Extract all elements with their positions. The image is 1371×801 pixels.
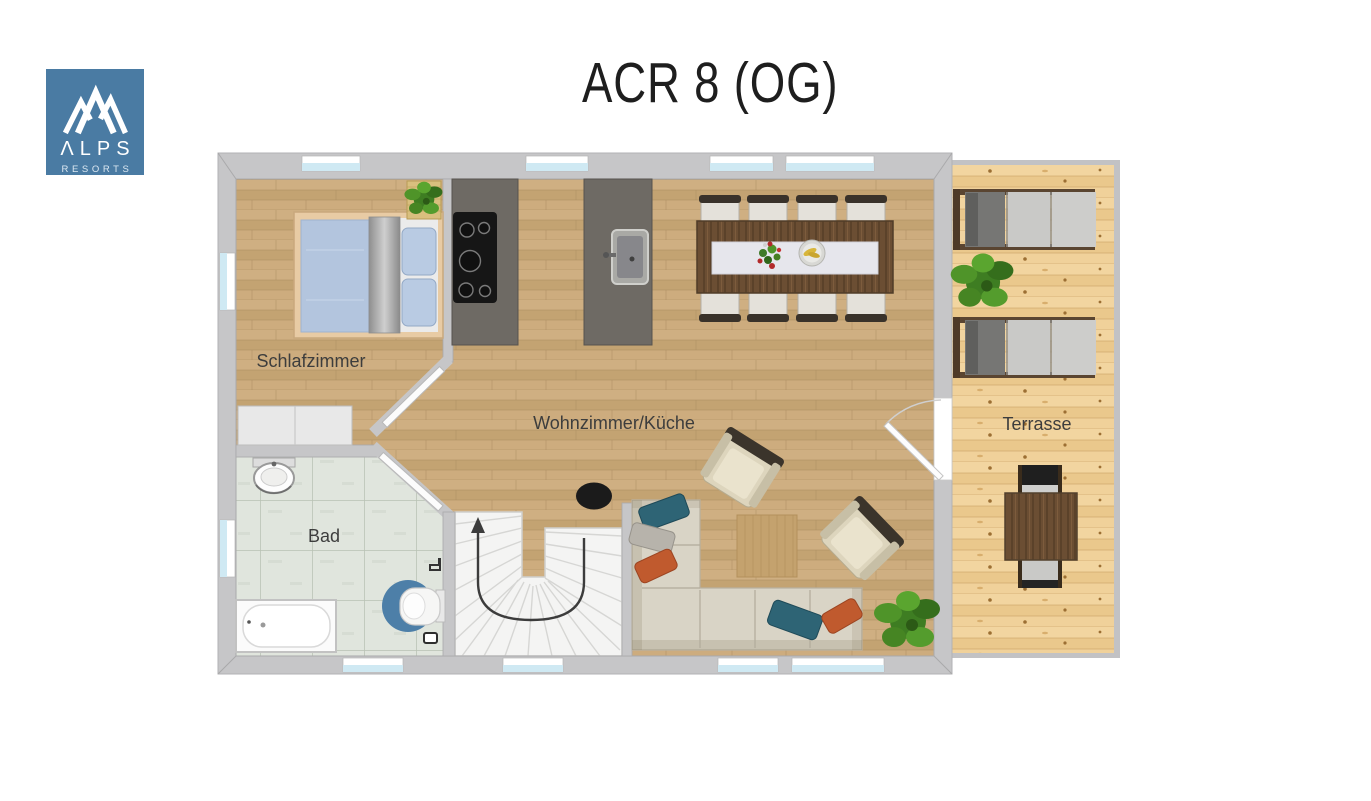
dining-chair bbox=[747, 291, 789, 322]
floor-plan: Schlafzimmer Bad Wohnzimmer/Küche Terras… bbox=[0, 0, 1371, 801]
window-left-bath bbox=[220, 520, 235, 577]
cooktop bbox=[453, 212, 497, 303]
dining-chair bbox=[845, 291, 887, 322]
bedroom-plant-on-mat bbox=[404, 181, 442, 219]
window-left-bedroom bbox=[220, 253, 235, 310]
sun-lounger bbox=[953, 189, 1096, 250]
wall-bedroom-bath bbox=[236, 445, 378, 457]
window-top-kitchen bbox=[526, 156, 588, 171]
wall-left bbox=[218, 153, 236, 674]
square-rug bbox=[737, 515, 797, 577]
wall-bath-stairs bbox=[443, 512, 455, 656]
terrace-table bbox=[1005, 493, 1077, 560]
window-top-dining-2 bbox=[786, 156, 874, 171]
washbasin bbox=[253, 458, 295, 493]
terrace-chair-top bbox=[1018, 465, 1062, 497]
black-side-table bbox=[576, 483, 612, 510]
pillow bbox=[402, 228, 436, 275]
window-bottom-living-1 bbox=[718, 658, 778, 672]
room-label-wohnzimmer-kueche: Wohnzimmer/Küche bbox=[533, 413, 695, 433]
room-label-bad: Bad bbox=[308, 526, 340, 546]
flush-plate-icon bbox=[424, 633, 437, 643]
fruit-plate bbox=[799, 240, 825, 266]
window-bottom-bath bbox=[343, 658, 403, 672]
window-top-bedroom bbox=[302, 156, 360, 171]
room-label-schlafzimmer: Schlafzimmer bbox=[256, 351, 365, 371]
dining-chair bbox=[796, 291, 838, 322]
window-bottom-living-2 bbox=[792, 658, 884, 672]
table-runner bbox=[712, 242, 878, 274]
dining-chair bbox=[699, 291, 741, 322]
pillow bbox=[402, 279, 436, 326]
terrace-chair-bottom bbox=[1018, 556, 1062, 588]
window-top-dining-1 bbox=[710, 156, 773, 171]
blanket-roll bbox=[369, 217, 400, 333]
wardrobe bbox=[238, 406, 352, 445]
sun-lounger bbox=[953, 317, 1096, 378]
double-bed bbox=[294, 212, 443, 338]
bathtub bbox=[236, 600, 336, 652]
page: ΛLPS RESORTS ACR 8 (OG) bbox=[0, 0, 1371, 801]
wall-stairs-living bbox=[622, 503, 632, 656]
room-label-terrasse: Terrasse bbox=[1002, 414, 1071, 434]
window-bottom-stairs bbox=[503, 658, 563, 672]
